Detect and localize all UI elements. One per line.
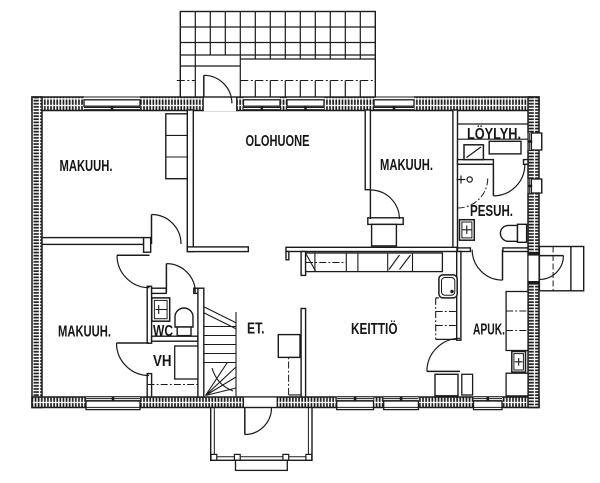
svg-text:ET.: ET. — [247, 321, 265, 338]
svg-text:VH: VH — [153, 353, 172, 370]
svg-text:WC: WC — [153, 323, 173, 340]
svg-text:APUK.: APUK. — [473, 322, 505, 339]
svg-text:LÖYLYH.: LÖYLYH. — [467, 126, 521, 143]
svg-text:MAKUUH.: MAKUUH. — [60, 158, 113, 175]
svg-text:MAKUUH.: MAKUUH. — [380, 157, 433, 174]
svg-text:OLOHUONE: OLOHUONE — [246, 133, 310, 150]
svg-text:KEITTIÖ: KEITTIÖ — [351, 321, 398, 338]
svg-text:MAKUUH.: MAKUUH. — [58, 324, 111, 341]
svg-text:PESUH.: PESUH. — [470, 203, 513, 220]
